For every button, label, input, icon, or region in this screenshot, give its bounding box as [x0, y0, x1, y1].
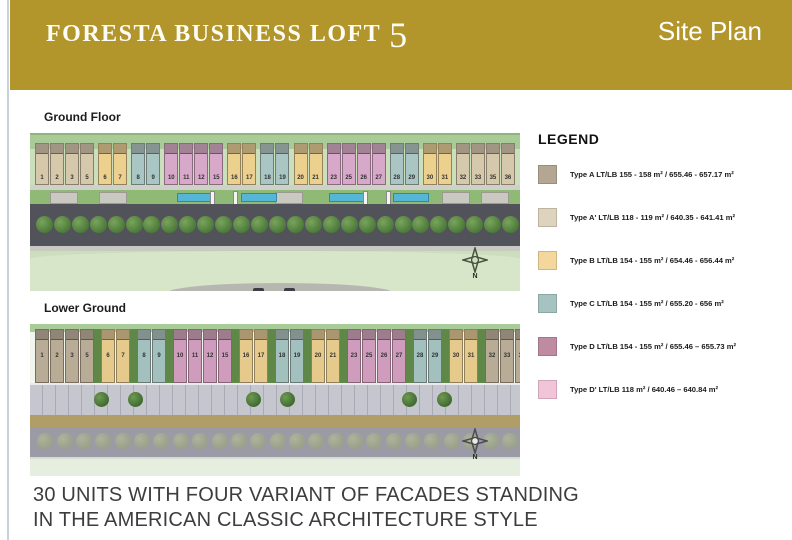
unit-number: 30: [424, 175, 436, 181]
unit-group-type-b: 1617: [227, 143, 256, 185]
legend-item-label: Type D' LT/LB 118 m² / 640.46 – 640.84 m…: [570, 385, 718, 394]
unit-group-type-c: 2829: [413, 329, 442, 383]
unit-roof: [501, 330, 513, 340]
unit-number: 19: [291, 353, 303, 359]
unit-2: 2: [50, 143, 64, 185]
unit-number: 27: [393, 353, 405, 359]
unit-16: 16: [227, 143, 241, 185]
unit-group-type-a: 32333536: [485, 329, 520, 383]
unit-group-type-c: 2829: [390, 143, 419, 185]
paver-plot: [442, 192, 470, 204]
lower-parking-strip: [30, 383, 520, 417]
gate-post: [233, 191, 238, 205]
tree-icon: [161, 216, 178, 233]
unit-29: 29: [405, 143, 419, 185]
unit-roof: [457, 144, 469, 154]
unit-11: 11: [179, 143, 193, 185]
water-feature: [329, 193, 365, 202]
unit-number: 5: [81, 353, 93, 359]
unit-group-type-b: 2021: [294, 143, 323, 185]
lower-ground-plan: 1235678910111215161718192021232526272829…: [30, 324, 520, 476]
gate-post: [210, 191, 215, 205]
unit-roof: [343, 144, 355, 154]
legend-item-label: Type B LT/LB 154 - 155 m² / 654.46 - 656…: [570, 256, 734, 265]
unit-roof: [66, 330, 78, 340]
unit-number: 33: [472, 175, 484, 181]
legend-items: Type A LT/LB 155 - 158 m² / 655.46 - 657…: [538, 165, 778, 399]
unit-roof: [228, 144, 240, 154]
unit-number: 15: [219, 353, 231, 359]
unit-32: 32: [456, 143, 470, 185]
tree-icon: [90, 216, 107, 233]
legend-item-label: Type A LT/LB 155 - 158 m² / 655.46 - 657…: [570, 170, 734, 179]
unit-28: 28: [413, 329, 427, 383]
unit-roof: [429, 330, 441, 340]
tree-icon: [430, 216, 447, 233]
tree-icon: [143, 216, 160, 233]
tree-icon: [305, 216, 322, 233]
unit-roof: [276, 330, 288, 340]
tree-icon: [251, 216, 268, 233]
unit-number: 21: [327, 353, 339, 359]
unit-roof: [219, 330, 231, 340]
unit-number: 29: [429, 353, 441, 359]
unit-number: 19: [276, 175, 288, 181]
tree-icon: [287, 216, 304, 233]
unit-number: 23: [348, 353, 360, 359]
unit-18: 18: [260, 143, 274, 185]
tree-icon: [328, 433, 344, 449]
unit-3: 3: [65, 329, 79, 383]
unit-number: 36: [502, 175, 514, 181]
gate-post: [386, 191, 391, 205]
unit-3: 3: [65, 143, 79, 185]
unit-roof: [406, 144, 418, 154]
unit-5: 5: [80, 143, 94, 185]
unit-18: 18: [275, 329, 289, 383]
lower-driveway-lane: [30, 415, 520, 427]
paver-plot: [481, 192, 509, 204]
tree-icon: [502, 433, 518, 449]
unit-number: 3: [66, 353, 78, 359]
unit-23: 23: [327, 143, 341, 185]
unit-roof: [516, 330, 520, 340]
unit-roof: [138, 330, 150, 340]
legend-swatch: [538, 208, 557, 227]
ground-boulevard-road: [30, 204, 520, 246]
unit-roof: [310, 144, 322, 154]
unit-roof: [147, 144, 159, 154]
unit-roof: [373, 144, 385, 154]
unit-number: 20: [295, 175, 307, 181]
legend-swatch: [538, 251, 557, 270]
unit-number: 16: [228, 175, 240, 181]
unit-roof: [81, 330, 93, 340]
unit-roof: [36, 144, 48, 154]
unit-26: 26: [357, 143, 371, 185]
unit-number: 18: [276, 353, 288, 359]
tree-icon: [437, 392, 452, 407]
unit-roof: [487, 144, 499, 154]
unit-28: 28: [390, 143, 404, 185]
unit-11: 11: [188, 329, 202, 383]
unit-number: 6: [99, 175, 111, 181]
unit-10: 10: [164, 143, 178, 185]
gate-post: [363, 191, 368, 205]
unit-number: 32: [457, 175, 469, 181]
unit-roof: [114, 144, 126, 154]
unit-23: 23: [347, 329, 361, 383]
unit-roof: [486, 330, 498, 340]
unit-roof: [327, 330, 339, 340]
unit-roof: [174, 330, 186, 340]
water-feature: [177, 193, 213, 202]
unit-12: 12: [194, 143, 208, 185]
tree-icon: [386, 433, 402, 449]
tree-icon: [308, 433, 324, 449]
unit-roof: [36, 330, 48, 340]
unit-roof: [391, 144, 403, 154]
unit-roof: [243, 144, 255, 154]
unit-number: 11: [189, 353, 201, 359]
tree-icon: [76, 433, 92, 449]
header-bar: FORESTA BUSINESS LOFT5 Site Plan: [10, 0, 792, 90]
unit-31: 31: [464, 329, 478, 383]
unit-12: 12: [203, 329, 217, 383]
lower-road: [30, 427, 520, 457]
brand-title-text: FORESTA BUSINESS LOFT: [46, 21, 381, 47]
unit-roof: [295, 144, 307, 154]
unit-roof: [117, 330, 129, 340]
ground-frontyard-strip: [30, 190, 520, 204]
site-plan-page: FORESTA BUSINESS LOFT5 Site Plan Ground …: [0, 0, 792, 540]
tree-icon: [359, 216, 376, 233]
tree-icon: [57, 433, 73, 449]
legend-title: LEGEND: [538, 131, 778, 147]
unit-roof: [261, 144, 273, 154]
unit-roof: [99, 144, 111, 154]
unit-25: 25: [342, 143, 356, 185]
ground-floor-label: Ground Floor: [44, 110, 121, 124]
unit-30: 30: [449, 329, 463, 383]
tree-icon: [484, 216, 501, 233]
unit-roof: [240, 330, 252, 340]
lower-units-row: 1235678910111215161718192021232526272829…: [35, 329, 515, 383]
unit-1: 1: [35, 329, 49, 383]
unit-group-type-a: 1235: [35, 329, 94, 383]
unit-8: 8: [137, 329, 151, 383]
unit-8: 8: [131, 143, 145, 185]
unit-number: 31: [439, 175, 451, 181]
unit-number: 25: [343, 175, 355, 181]
unit-number: 26: [378, 353, 390, 359]
unit-roof: [66, 144, 78, 154]
unit-33: 33: [500, 329, 514, 383]
unit-number: 9: [153, 353, 165, 359]
unit-number: 6: [102, 353, 114, 359]
footer-tagline: 30 UNITS WITH FOUR VARIANT OF FACADES ST…: [33, 483, 579, 533]
unit-number: 2: [51, 353, 63, 359]
unit-21: 21: [326, 329, 340, 383]
unit-number: 8: [138, 353, 150, 359]
unit-roof: [132, 144, 144, 154]
legend-item: Type D' LT/LB 118 m² / 640.46 – 640.84 m…: [538, 380, 778, 399]
unit-roof: [276, 144, 288, 154]
tree-icon: [128, 392, 143, 407]
paver-plot: [50, 192, 78, 204]
tree-icon: [233, 216, 250, 233]
tree-icon: [36, 216, 53, 233]
unit-roof: [153, 330, 165, 340]
unit-group-type-d: 23252627: [347, 329, 406, 383]
unit-number: 30: [450, 353, 462, 359]
unit-roof: [363, 330, 375, 340]
unit-number: 9: [147, 175, 159, 181]
unit-1: 1: [35, 143, 49, 185]
unit-group-type-b: 2021: [311, 329, 340, 383]
unit-group-type-c: 89: [137, 329, 166, 383]
tree-icon: [366, 433, 382, 449]
unit-number: 12: [204, 353, 216, 359]
water-feature: [241, 193, 277, 202]
unit-27: 27: [392, 329, 406, 383]
unit-group-type-c: 1819: [275, 329, 304, 383]
unit-number: 15: [210, 175, 222, 181]
unit-group-type-d: 10111215: [173, 329, 232, 383]
tree-icon: [341, 216, 358, 233]
unit-15: 15: [218, 329, 232, 383]
unit-5: 5: [80, 329, 94, 383]
north-label: N: [460, 273, 490, 280]
unit-group-type-a: 1235: [35, 143, 94, 185]
tree-icon: [126, 216, 143, 233]
unit-number: 17: [243, 175, 255, 181]
unit-number: 35: [516, 353, 520, 359]
unit-number: 31: [465, 353, 477, 359]
unit-number: 5: [81, 175, 93, 181]
tree-icon: [250, 433, 266, 449]
ground-floor-plan: 1235678910111215161718192021232526272829…: [30, 133, 520, 291]
tree-icon: [231, 433, 247, 449]
paver-plot: [99, 192, 127, 204]
car: [284, 288, 295, 291]
unit-7: 7: [113, 143, 127, 185]
legend-swatch: [538, 337, 557, 356]
tree-icon: [270, 433, 286, 449]
tree-icon: [197, 216, 214, 233]
unit-group-type-b: 67: [98, 143, 127, 185]
unit-group-type-d: 10111215: [164, 143, 223, 185]
legend-item-label: Type D LT/LB 154 - 155 m² / 655.46 – 655…: [570, 342, 736, 351]
tree-icon: [405, 433, 421, 449]
unit-number: 18: [261, 175, 273, 181]
unit-roof: [424, 144, 436, 154]
unit-group-type-c: 1819: [260, 143, 289, 185]
tree-icon: [179, 216, 196, 233]
tree-icon: [215, 216, 232, 233]
tree-icon: [134, 433, 150, 449]
ground-units-row: 1235678910111215161718192021232526272829…: [35, 143, 515, 185]
unit-2: 2: [50, 329, 64, 383]
legend-item: Type A LT/LB 155 - 158 m² / 655.46 - 657…: [538, 165, 778, 184]
unit-roof: [81, 144, 93, 154]
legend: LEGEND Type A LT/LB 155 - 158 m² / 655.4…: [538, 131, 778, 423]
unit-roof: [180, 144, 192, 154]
lower-ground-label: Lower Ground: [44, 301, 126, 315]
legend-item: Type B LT/LB 154 - 155 m² / 654.46 - 656…: [538, 251, 778, 270]
unit-roof: [450, 330, 462, 340]
unit-number: 28: [414, 353, 426, 359]
unit-roof: [502, 144, 514, 154]
unit-number: 7: [114, 175, 126, 181]
unit-roof: [210, 144, 222, 154]
unit-number: 35: [487, 175, 499, 181]
unit-7: 7: [116, 329, 130, 383]
unit-group-type-b: 3031: [423, 143, 452, 185]
unit-30: 30: [423, 143, 437, 185]
unit-roof: [102, 330, 114, 340]
unit-roof: [195, 144, 207, 154]
unit-group-type-d: 23252627: [327, 143, 386, 185]
unit-number: 10: [174, 353, 186, 359]
unit-roof: [358, 144, 370, 154]
unit-number: 1: [36, 353, 48, 359]
tree-icon: [280, 392, 295, 407]
tree-icon: [377, 216, 394, 233]
tree-icon: [108, 216, 125, 233]
tree-icon: [444, 433, 460, 449]
compass-icon: N: [460, 428, 490, 461]
unit-number: 10: [165, 175, 177, 181]
unit-19: 19: [290, 329, 304, 383]
unit-group-type-b: 3031: [449, 329, 478, 383]
unit-17: 17: [242, 143, 256, 185]
unit-20: 20: [294, 143, 308, 185]
legend-swatch: [538, 380, 557, 399]
unit-33: 33: [471, 143, 485, 185]
unit-21: 21: [309, 143, 323, 185]
page-title: Site Plan: [658, 16, 762, 47]
tree-icon: [94, 392, 109, 407]
unit-number: 16: [240, 353, 252, 359]
tree-icon: [246, 392, 261, 407]
unit-number: 17: [255, 353, 267, 359]
north-label: N: [460, 454, 490, 461]
tree-icon: [115, 433, 131, 449]
tree-icon: [448, 216, 465, 233]
unit-number: 3: [66, 175, 78, 181]
legend-swatch: [538, 165, 557, 184]
unit-36: 36: [501, 143, 515, 185]
tree-icon: [424, 433, 440, 449]
unit-number: 33: [501, 353, 513, 359]
unit-roof: [348, 330, 360, 340]
unit-number: 25: [363, 353, 375, 359]
unit-number: 8: [132, 175, 144, 181]
unit-number: 23: [328, 175, 340, 181]
tree-icon: [323, 216, 340, 233]
unit-number: 32: [486, 353, 498, 359]
unit-roof: [472, 144, 484, 154]
unit-35: 35: [486, 143, 500, 185]
tree-icon: [37, 433, 53, 449]
unit-roof: [465, 330, 477, 340]
unit-25: 25: [362, 329, 376, 383]
tree-icon: [502, 216, 519, 233]
unit-roof: [378, 330, 390, 340]
brand-title-number: 5: [389, 15, 409, 55]
footer-line-1: 30 UNITS WITH FOUR VARIANT OF FACADES ST…: [33, 483, 579, 508]
unit-number: 7: [117, 353, 129, 359]
unit-roof: [439, 144, 451, 154]
unit-15: 15: [209, 143, 223, 185]
unit-16: 16: [239, 329, 253, 383]
unit-9: 9: [146, 143, 160, 185]
unit-number: 28: [391, 175, 403, 181]
unit-20: 20: [311, 329, 325, 383]
tree-icon: [347, 433, 363, 449]
lower-lawn: [30, 457, 520, 476]
left-edge-divider: [7, 0, 9, 540]
unit-number: 29: [406, 175, 418, 181]
unit-9: 9: [152, 329, 166, 383]
unit-roof: [291, 330, 303, 340]
unit-number: 11: [180, 175, 192, 181]
tree-icon: [395, 216, 412, 233]
water-feature: [393, 193, 429, 202]
unit-17: 17: [254, 329, 268, 383]
unit-6: 6: [101, 329, 115, 383]
tree-icon: [153, 433, 169, 449]
tree-icon: [212, 433, 228, 449]
unit-roof: [189, 330, 201, 340]
compass-icon: N: [460, 247, 490, 280]
unit-roof: [51, 330, 63, 340]
unit-27: 27: [372, 143, 386, 185]
tree-icon: [289, 433, 305, 449]
unit-number: 21: [310, 175, 322, 181]
tree-icon: [72, 216, 89, 233]
paver-plot: [275, 192, 303, 204]
unit-29: 29: [428, 329, 442, 383]
unit-group-type-b: 1617: [239, 329, 268, 383]
unit-number: 2: [51, 175, 63, 181]
car: [253, 288, 264, 291]
unit-group-type-b: 67: [101, 329, 130, 383]
unit-31: 31: [438, 143, 452, 185]
unit-number: 1: [36, 175, 48, 181]
tree-icon: [402, 392, 417, 407]
unit-32: 32: [485, 329, 499, 383]
unit-roof: [255, 330, 267, 340]
unit-roof: [165, 144, 177, 154]
unit-roof: [51, 144, 63, 154]
unit-roof: [414, 330, 426, 340]
legend-item-label: Type C LT/LB 154 - 155 m² / 655.20 - 656…: [570, 299, 724, 308]
unit-group-type-a: 32333536: [456, 143, 515, 185]
unit-6: 6: [98, 143, 112, 185]
legend-item: Type C LT/LB 154 - 155 m² / 655.20 - 656…: [538, 294, 778, 313]
tree-icon: [95, 433, 111, 449]
unit-number: 20: [312, 353, 324, 359]
brand-title: FORESTA BUSINESS LOFT5: [46, 14, 409, 56]
tree-icon: [54, 216, 71, 233]
unit-roof: [204, 330, 216, 340]
tree-icon: [173, 433, 189, 449]
unit-10: 10: [173, 329, 187, 383]
unit-roof: [312, 330, 324, 340]
legend-swatch: [538, 294, 557, 313]
